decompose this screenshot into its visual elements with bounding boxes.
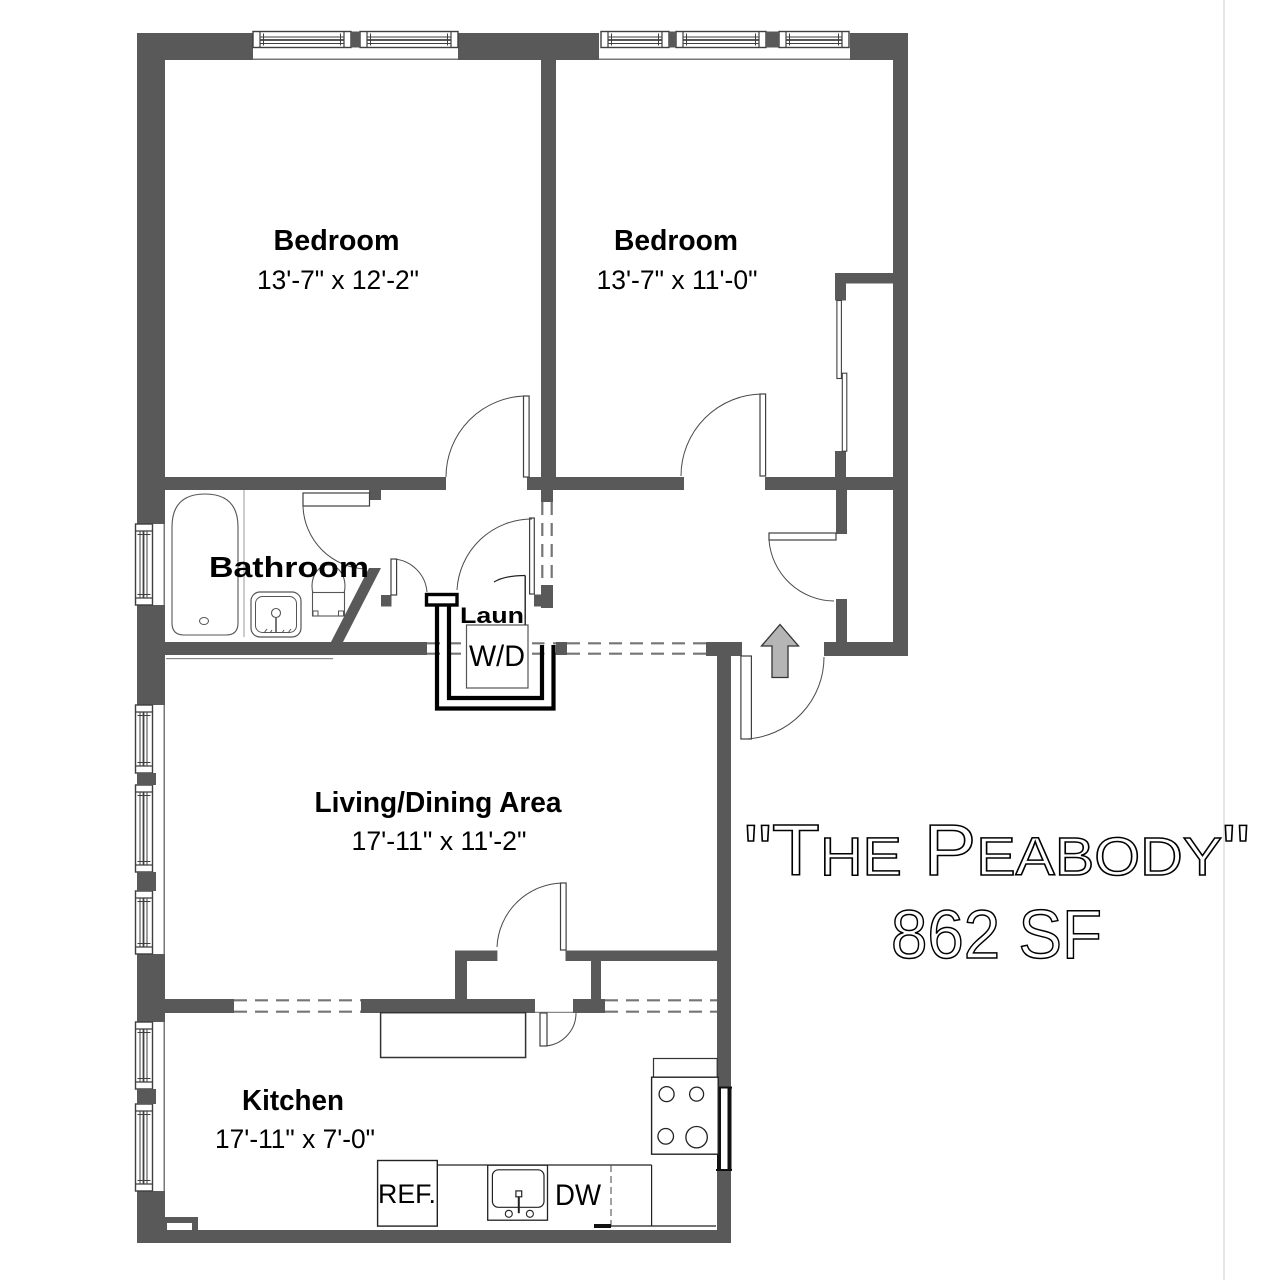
svg-text:Kitchen: Kitchen [242,1085,344,1117]
svg-text:Living/Dining Area: Living/Dining Area [315,787,563,819]
svg-text:13'-7" x 12'-2": 13'-7" x 12'-2" [257,265,419,295]
svg-text:REF.: REF. [378,1179,436,1209]
svg-text:17'-11" x 7'-0": 17'-11" x 7'-0" [215,1124,375,1154]
svg-text:17'-11" x 11'-2": 17'-11" x 11'-2" [352,826,527,856]
svg-text:W/D: W/D [469,640,525,673]
svg-text:Bedroom: Bedroom [274,225,400,257]
svg-text:Laun: Laun [460,603,524,628]
svg-text:Bedroom: Bedroom [614,225,738,257]
svg-text:13'-7" x 11'-0": 13'-7" x 11'-0" [597,265,758,295]
svg-text:862 SF: 862 SF [891,896,1102,973]
svg-text:Bathroom: Bathroom [209,552,369,584]
svg-text:DW: DW [555,1179,602,1212]
